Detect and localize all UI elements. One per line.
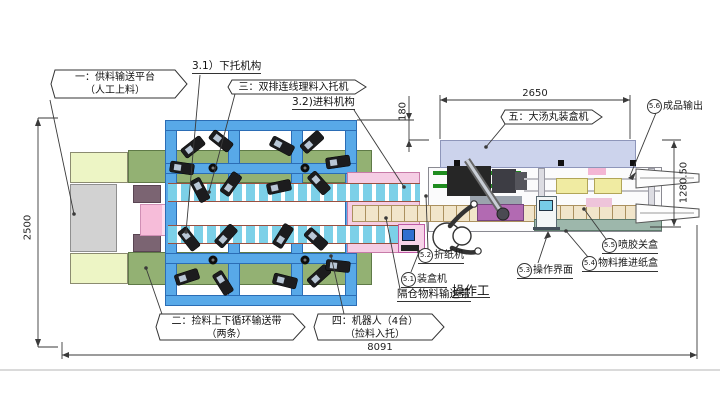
mount-pad-1 xyxy=(454,160,460,166)
dim-offset: 180 xyxy=(398,95,409,129)
return-track-inner xyxy=(141,205,162,235)
label-5-2: 5.2 折纸机 xyxy=(418,248,464,264)
callout-circulation-belt: 二：捡料上下循环输送带 （两条） xyxy=(160,315,293,341)
callout-cartoner-label: 五：大汤丸装盒机 xyxy=(505,111,592,124)
dim-cartoner-depth: 1280.50 xyxy=(679,159,690,207)
cartoner-hood xyxy=(440,140,636,168)
pusher-pink-1 xyxy=(588,168,606,175)
platform-block-bottom xyxy=(133,234,161,252)
callout-feed-platform-line1: 一：供料输送平台 xyxy=(55,71,175,84)
drive-unit-2 xyxy=(515,172,527,190)
mount-pad-2 xyxy=(558,160,564,166)
label-5-6: 5.6 成品输出 xyxy=(647,99,703,114)
label-5-5: 5.5 喷胶关盒 xyxy=(602,238,658,254)
platform-block-top xyxy=(133,185,161,203)
frame-vertical-left xyxy=(165,120,177,306)
callout-tray-loader-label: 三：双排连线理料入托机 xyxy=(232,81,355,94)
tray-conveyor-bottom xyxy=(168,225,420,244)
drive-unit xyxy=(492,169,516,193)
dim-total-length: 8091 xyxy=(350,342,410,353)
callout-cartoner: 五：大汤丸装盒机 xyxy=(505,111,592,124)
frame-horizontal-lower xyxy=(165,253,357,264)
label-5-4-text: 物料推进纸盒 xyxy=(598,257,658,270)
callout-circulation-belt-line2: （两条） xyxy=(160,328,293,341)
callout-robots-line1: 四：机器人（4台） xyxy=(318,315,432,328)
label-5-6-num: 5.6 xyxy=(647,99,662,114)
callout-tray-loader: 三：双排连线理料入托机 xyxy=(232,81,355,94)
label-5-4: 5.4 物料推进纸盒 xyxy=(582,256,658,272)
callout-feed-platform-line2: （人工上料） xyxy=(55,84,175,97)
frame-center-gap xyxy=(177,202,345,225)
dim-cartoner-length: 2650 xyxy=(505,88,565,99)
carton-blank-1 xyxy=(556,178,588,194)
arm-base xyxy=(477,204,524,221)
label-5-2-num: 5.2 xyxy=(418,248,433,263)
hmi-screen xyxy=(539,200,553,211)
dim-total-depth: 2500 xyxy=(23,208,34,248)
label-5-5-num: 5.5 xyxy=(602,238,617,253)
layout-drawing: 一：供料输送平台 （人工上料） 三：双排连线理料入托机 五：大汤丸装盒机 二：捡… xyxy=(0,0,720,419)
feed-platform-rail-bottom xyxy=(70,253,128,284)
label-5-1: 5.1 装盒机 xyxy=(401,272,447,288)
label-lower-support: 3.1）下托机构 xyxy=(192,60,261,74)
feed-platform-rail-top xyxy=(70,152,128,183)
label-5-4-num: 5.4 xyxy=(582,256,597,271)
tray-conveyor-top xyxy=(168,183,420,202)
hmi-base xyxy=(533,227,560,230)
callout-feed-platform: 一：供料输送平台 （人工上料） xyxy=(55,71,175,97)
carton-blank-2 xyxy=(594,178,622,194)
callout-robots: 四：机器人（4台） （捡料入托） xyxy=(318,315,432,341)
callout-circulation-belt-line1: 二：捡料上下循环输送带 xyxy=(160,315,293,328)
callout-robots-line2: （捡料入托） xyxy=(318,328,432,341)
pusher-pink-2 xyxy=(586,198,612,207)
column-right xyxy=(648,168,655,220)
label-5-6-text: 成品输出 xyxy=(663,100,703,113)
frame-horizontal-bottom xyxy=(165,295,357,306)
label-infeed: 3.2)进料机构 xyxy=(292,96,355,110)
label-5-3: 5.3 操作界面 xyxy=(517,263,573,279)
manual-loading-platform xyxy=(70,184,117,252)
folder-unit xyxy=(447,166,491,196)
label-5-5-text: 喷胶关盒 xyxy=(618,239,658,252)
paper-folder-base xyxy=(401,245,419,251)
label-5-3-num: 5.3 xyxy=(517,263,532,278)
label-5-1-num: 5.1 xyxy=(401,272,416,287)
mount-pad-3 xyxy=(630,160,636,166)
label-compartment-belt: 隔仓物料输送带 xyxy=(397,288,471,302)
label-5-2-text: 折纸机 xyxy=(434,249,464,262)
frame-horizontal-top xyxy=(165,120,357,131)
paper-folder-screen xyxy=(402,229,415,241)
label-5-3-text: 操作界面 xyxy=(533,264,573,277)
label-5-1-text: 装盒机 xyxy=(417,273,447,286)
frame-horizontal-upper xyxy=(165,163,357,174)
